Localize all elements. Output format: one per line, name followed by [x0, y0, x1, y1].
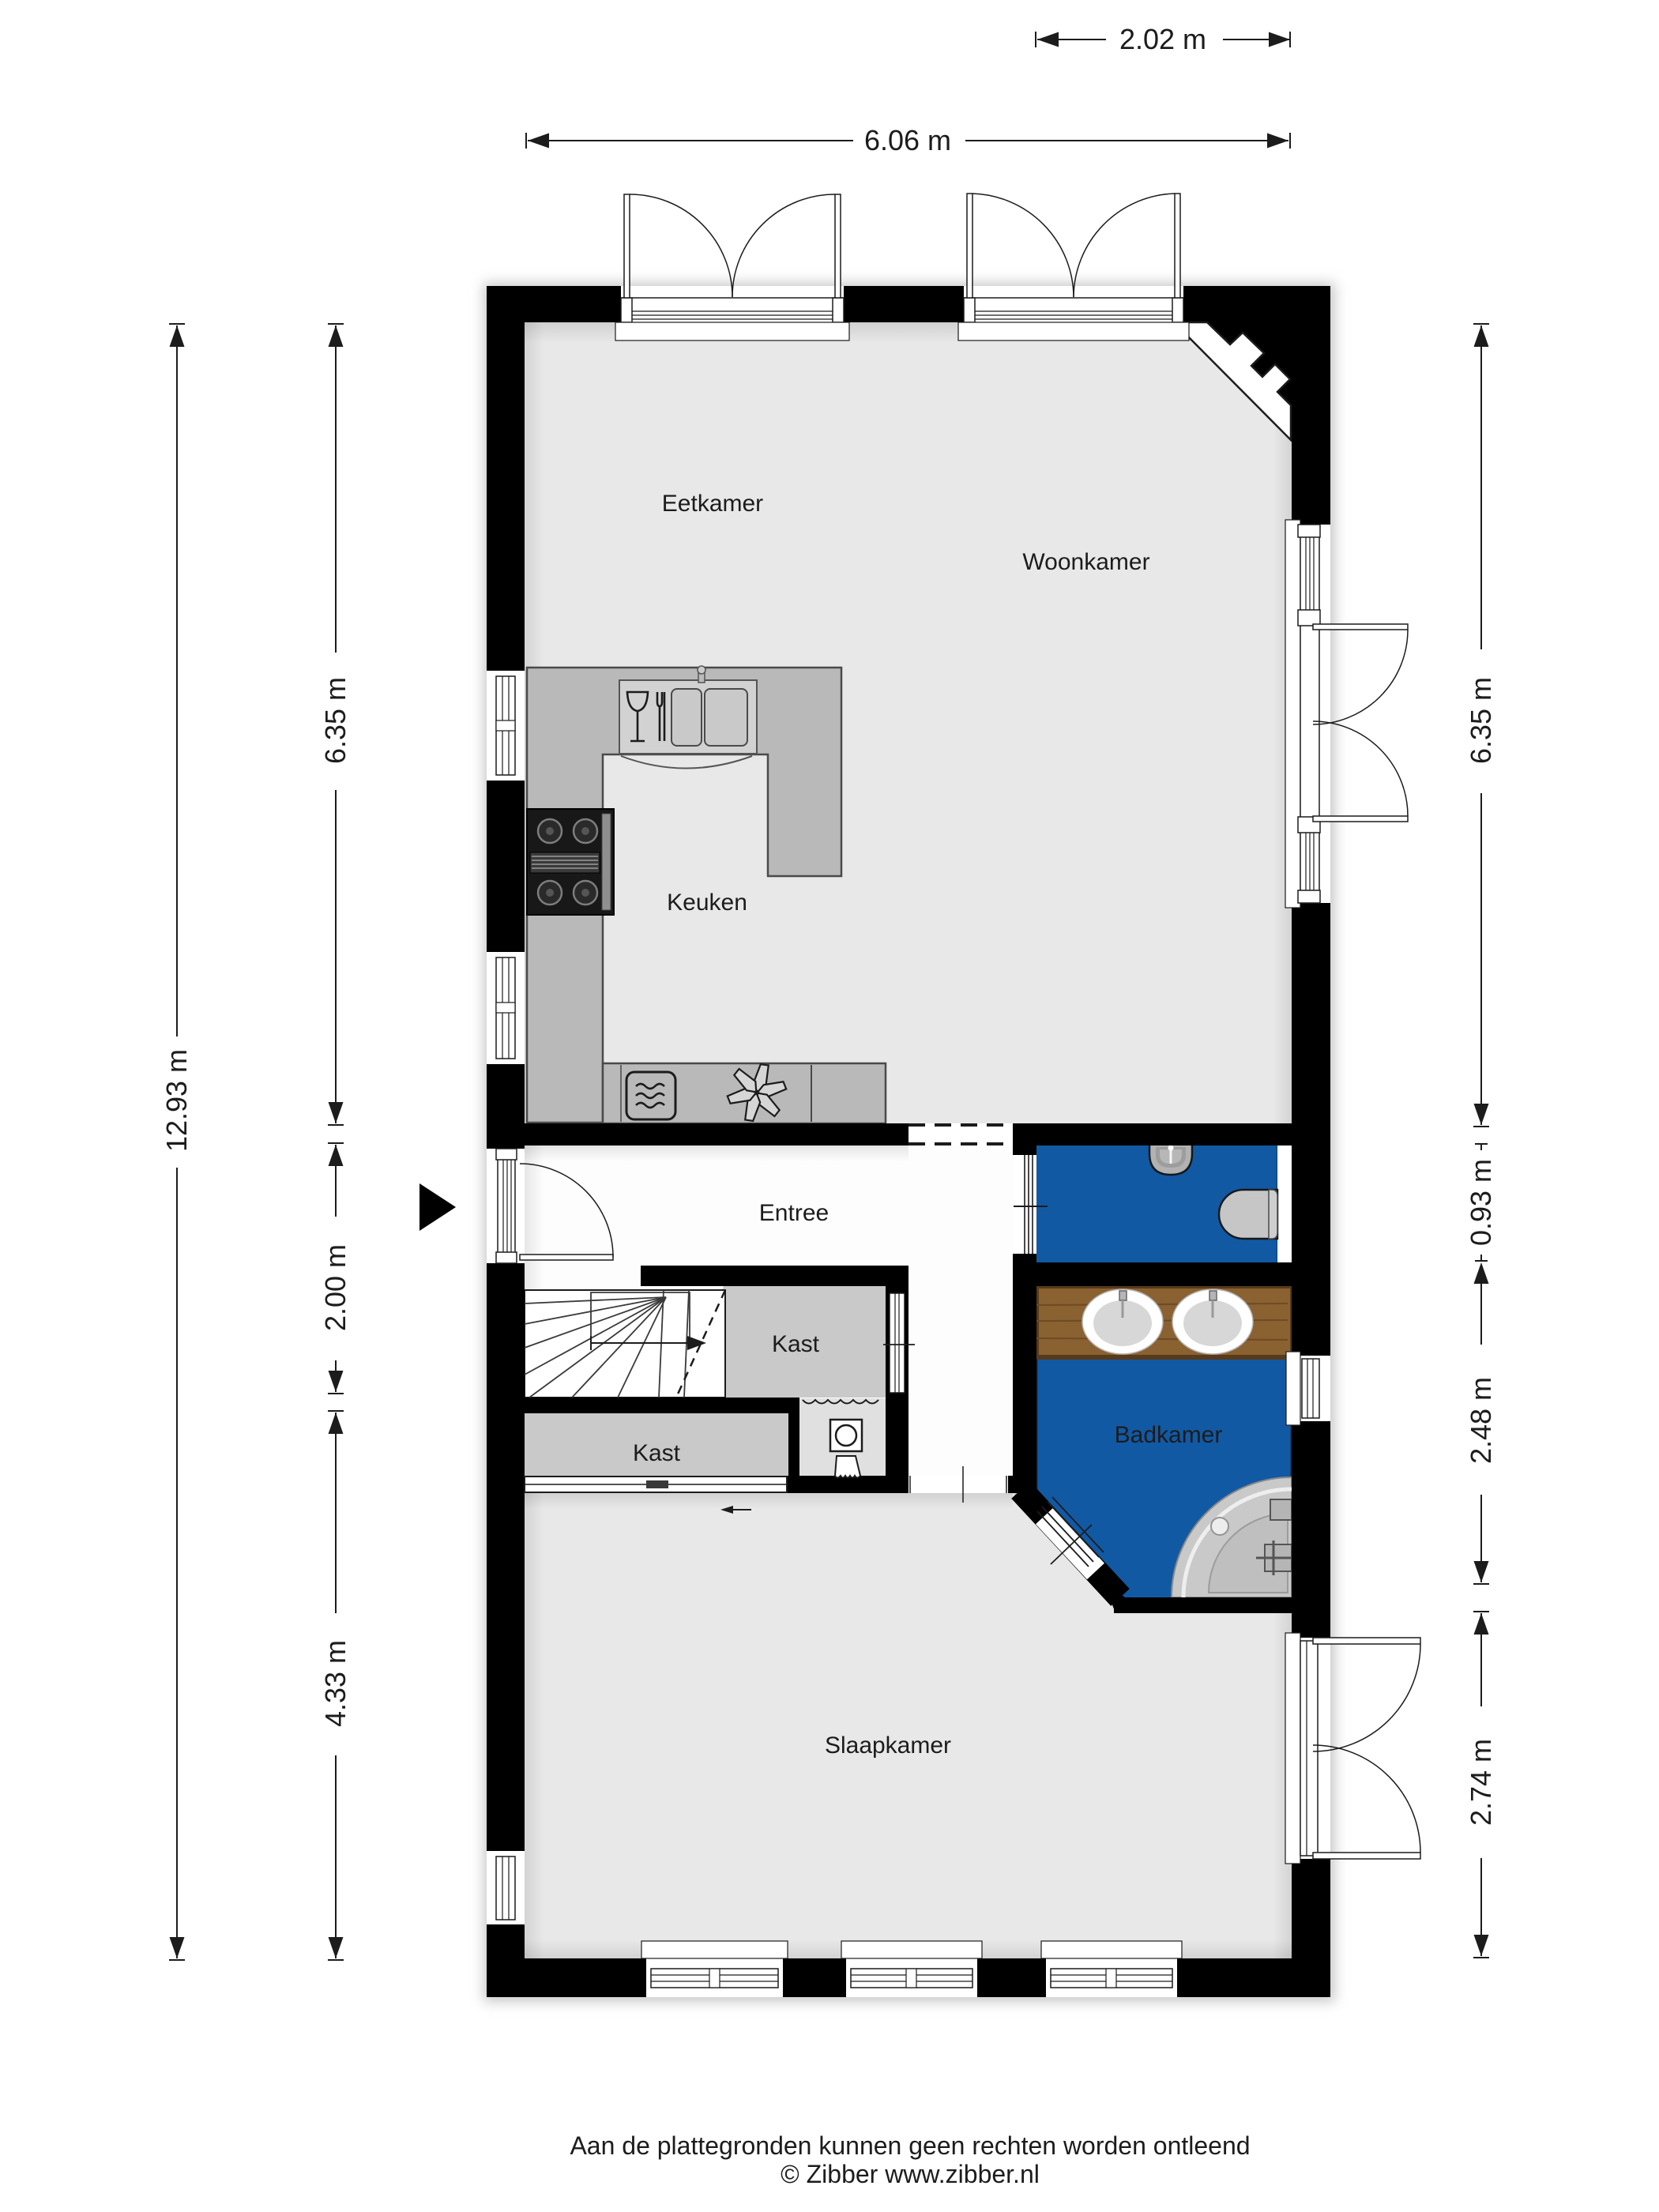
svg-text:Woonkamer: Woonkamer [1022, 549, 1149, 575]
svg-text:Keuken: Keuken [667, 890, 747, 916]
svg-text:2.02 m: 2.02 m [1119, 23, 1206, 55]
svg-text:Kast: Kast [633, 1440, 681, 1466]
svg-text:2.74 m: 2.74 m [1465, 1739, 1497, 1826]
svg-text:2.48 m: 2.48 m [1465, 1377, 1497, 1464]
svg-text:4.33 m: 4.33 m [319, 1640, 352, 1727]
svg-text:0.93 m: 0.93 m [1465, 1159, 1497, 1246]
svg-text:6.35 m: 6.35 m [1465, 677, 1497, 764]
svg-text:© Zibber www.zibber.nl: © Zibber www.zibber.nl [781, 2160, 1040, 2188]
svg-text:2.00 m: 2.00 m [319, 1244, 352, 1331]
svg-text:Badkamer: Badkamer [1115, 1422, 1223, 1448]
svg-text:12.93 m: 12.93 m [160, 1049, 193, 1152]
svg-text:Eetkamer: Eetkamer [662, 491, 763, 517]
svg-text:Kast: Kast [772, 1331, 820, 1357]
svg-text:Slaapkamer: Slaapkamer [825, 1732, 951, 1759]
svg-text:Aan de plattegronden kunnen ge: Aan de plattegronden kunnen geen rechten… [570, 2131, 1250, 2160]
svg-text:6.35 m: 6.35 m [319, 677, 352, 764]
svg-text:Entree: Entree [759, 1200, 829, 1226]
svg-text:6.06 m: 6.06 m [864, 124, 951, 156]
